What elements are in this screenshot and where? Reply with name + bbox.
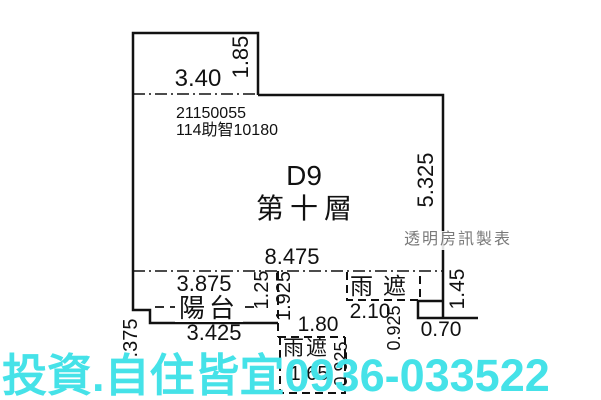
dim-balcony-width: 3.875 bbox=[169, 272, 239, 295]
dim-right-step-height: 1.45 bbox=[447, 266, 469, 312]
unit-label: D9 bbox=[264, 161, 344, 190]
dim-balcony-depth: 1.25 bbox=[252, 267, 272, 313]
floorplan-page: 21150055 114助智10180 D9 第十層 3.40 1.85 5.3… bbox=[0, 0, 601, 400]
dim-top-block-height: 1.85 bbox=[229, 32, 253, 82]
dim-bottom-canopy-width: 1.80 bbox=[290, 314, 346, 336]
dim-main-width: 8.475 bbox=[257, 245, 327, 268]
dim-right-side-height: 5.325 bbox=[414, 147, 438, 213]
maker-credit: 透明房訊製表 bbox=[401, 231, 515, 250]
floor-label: 第十層 bbox=[242, 194, 372, 223]
watermark-text: 投資.自住皆宜0936-033522 bbox=[2, 339, 601, 400]
dim-top-block-width: 3.40 bbox=[163, 66, 233, 91]
balcony-label: 陽台 bbox=[175, 295, 243, 322]
serial-number: 21150055 bbox=[176, 106, 246, 123]
dim-right-step-width: 0.70 bbox=[413, 319, 469, 341]
case-number: 114助智10180 bbox=[176, 123, 278, 140]
right-canopy-label: 雨遮 bbox=[346, 274, 420, 298]
